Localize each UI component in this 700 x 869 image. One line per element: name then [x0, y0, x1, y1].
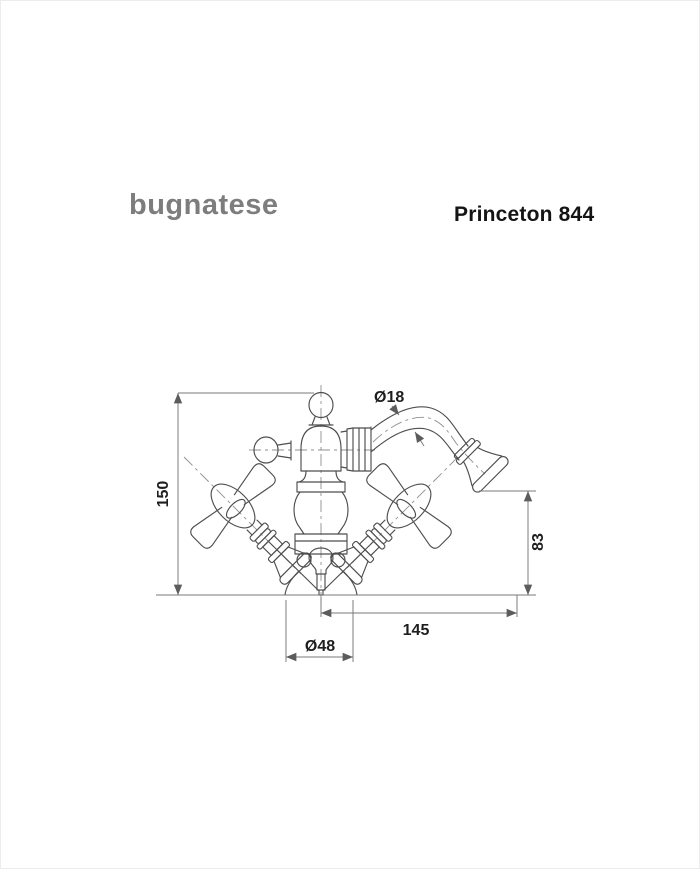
- dimension-spout-reach: [321, 595, 517, 617]
- spout-outlet: [446, 430, 510, 494]
- dimension-label-outlet-height: 83: [530, 533, 547, 551]
- dimension-lines: [156, 393, 536, 662]
- dimension-label-spout-reach: 145: [403, 622, 430, 639]
- centerlines: [184, 385, 485, 605]
- dimension-overall-height: [156, 393, 536, 595]
- dimension-label-overall-height: 150: [155, 481, 172, 508]
- product-spec-sheet: bugnatese Princeton 844: [0, 0, 700, 869]
- dimension-outlet-height: [479, 491, 536, 595]
- dimension-label-base-diameter: Ø48: [305, 638, 335, 655]
- technical-drawing: Ø18 150 83 145 Ø48: [1, 1, 700, 869]
- dimension-label-tube-diameter: Ø18: [374, 389, 404, 406]
- dimension-tube-diameter-leader: [392, 406, 424, 446]
